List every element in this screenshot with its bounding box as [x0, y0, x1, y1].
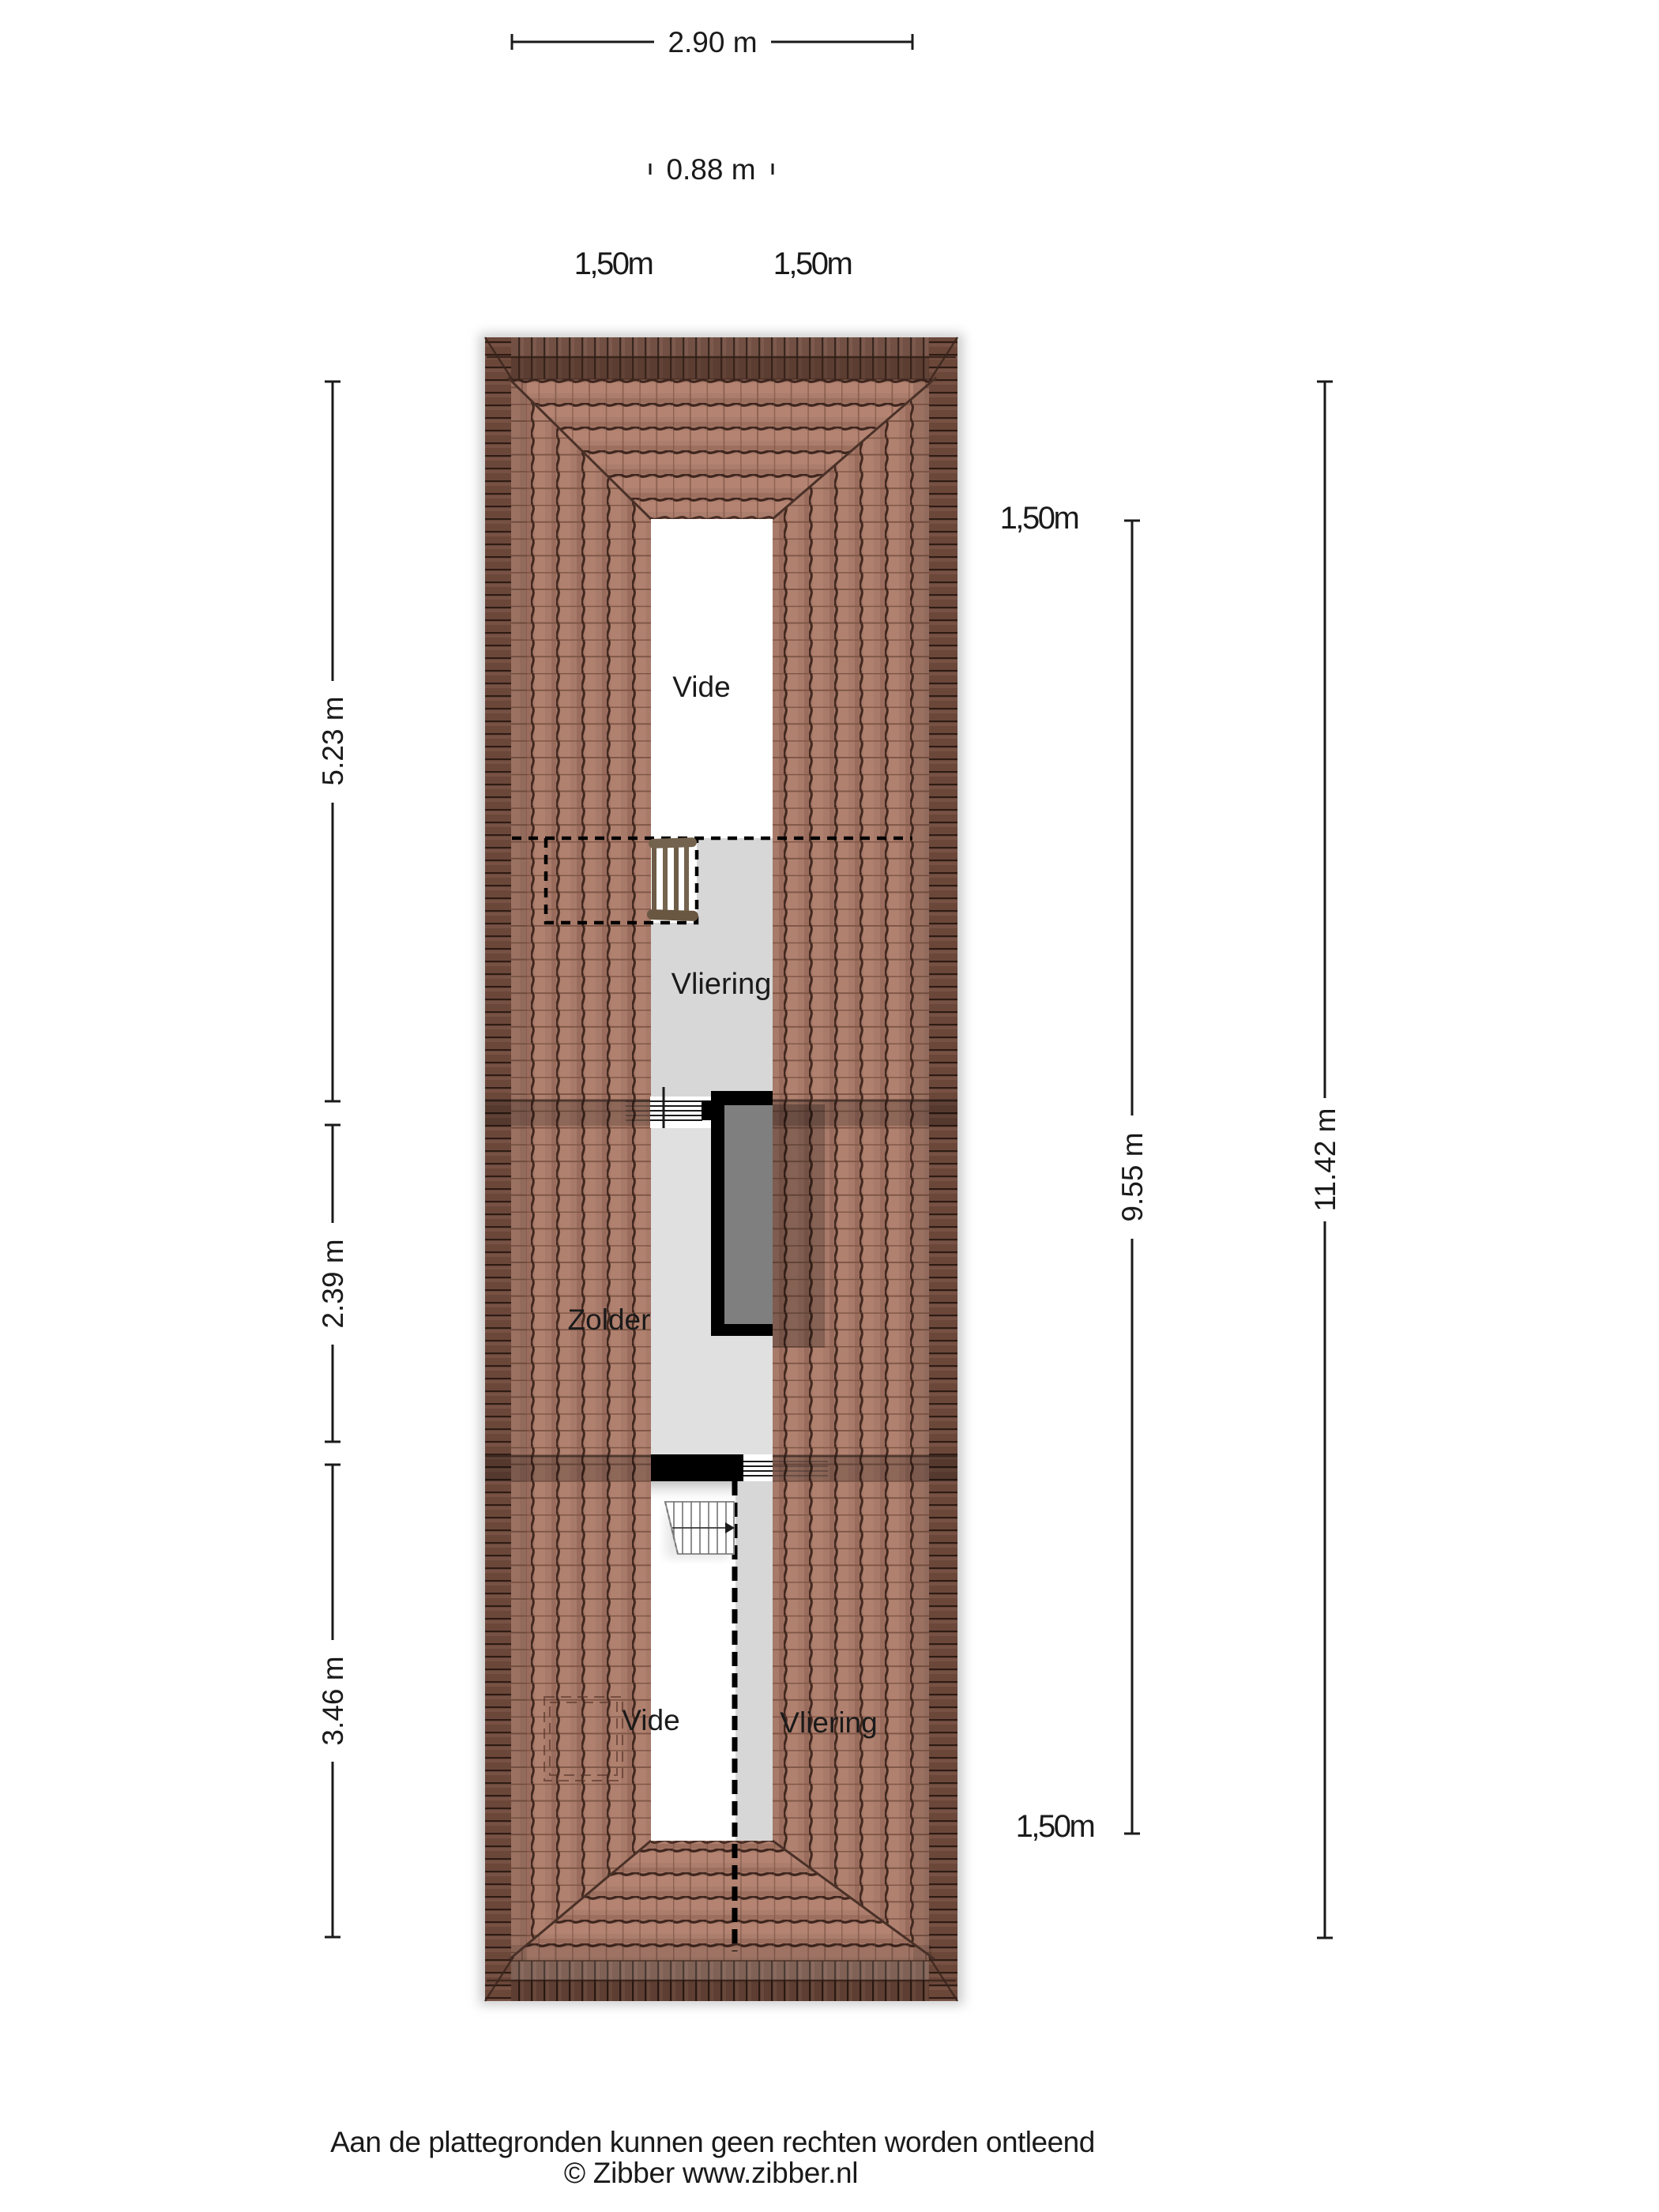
svg-text:11.42 m: 11.42 m — [1309, 1108, 1341, 1212]
svg-text:Vliering: Vliering — [671, 968, 772, 1001]
svg-text:1,50m: 1,50m — [1016, 1809, 1094, 1844]
svg-text:Zolder: Zolder — [568, 1303, 651, 1336]
svg-text:5.23 m: 5.23 m — [317, 696, 349, 785]
svg-text:Vide: Vide — [622, 1704, 679, 1736]
svg-text:© Zibber www.zibber.nl: © Zibber www.zibber.nl — [564, 2157, 858, 2189]
svg-text:Aan de plattegronden kunnen ge: Aan de plattegronden kunnen geen rechten… — [330, 2126, 1095, 2158]
svg-text:1,50m: 1,50m — [1000, 501, 1078, 536]
svg-text:9.55 m: 9.55 m — [1116, 1132, 1149, 1221]
svg-text:2.90 m: 2.90 m — [668, 26, 757, 58]
svg-text:2.39 m: 2.39 m — [317, 1239, 349, 1328]
svg-text:0.88 m: 0.88 m — [666, 153, 755, 186]
svg-text:1,50m: 1,50m — [574, 246, 653, 281]
svg-text:Vliering: Vliering — [780, 1706, 877, 1739]
svg-text:Vide: Vide — [672, 671, 730, 703]
svg-text:1,50m: 1,50m — [773, 246, 852, 281]
svg-text:3.46 m: 3.46 m — [317, 1656, 349, 1745]
